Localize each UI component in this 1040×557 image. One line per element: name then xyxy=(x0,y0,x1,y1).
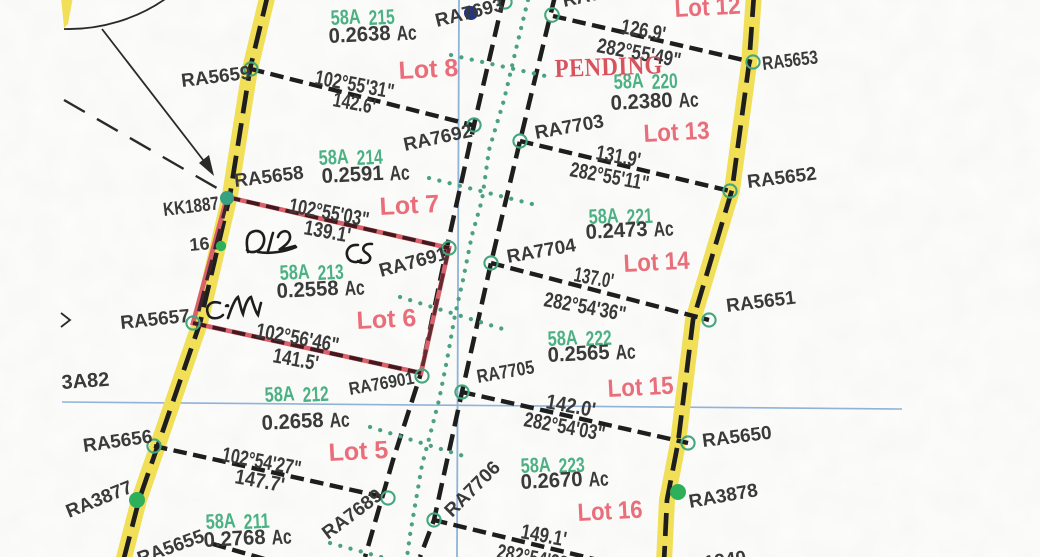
svg-text:Ac: Ac xyxy=(344,276,365,300)
svg-text:0.2658: 0.2658 xyxy=(261,409,324,435)
svg-text:0.2380: 0.2380 xyxy=(610,89,673,115)
svg-text:0.2473: 0.2473 xyxy=(585,218,648,244)
svg-text:58A: 58A xyxy=(264,382,295,407)
svg-text:16: 16 xyxy=(189,233,211,255)
svg-text:0.2638: 0.2638 xyxy=(328,22,391,48)
svg-text:Lot 16: Lot 16 xyxy=(577,496,643,527)
svg-text:0.2565: 0.2565 xyxy=(547,341,610,367)
svg-text:PENDING: PENDING xyxy=(554,50,663,83)
svg-text:Ac: Ac xyxy=(588,467,609,491)
svg-text:Ac: Ac xyxy=(615,340,636,364)
svg-text:Ac: Ac xyxy=(653,217,674,241)
svg-text:0.2670: 0.2670 xyxy=(520,468,583,494)
svg-text:Lot 8: Lot 8 xyxy=(398,54,459,85)
svg-text:0.2768: 0.2768 xyxy=(203,526,266,552)
svg-text:Ac: Ac xyxy=(329,408,350,432)
svg-text:Ac: Ac xyxy=(396,21,417,45)
svg-text:Lot 14: Lot 14 xyxy=(623,247,690,278)
svg-text:0.2591: 0.2591 xyxy=(321,162,384,188)
svg-text:212: 212 xyxy=(302,383,329,407)
svg-text:Lot 15: Lot 15 xyxy=(607,372,674,403)
svg-text:Lot 13: Lot 13 xyxy=(643,117,710,148)
svg-text:Lot 6: Lot 6 xyxy=(356,304,417,335)
svg-text:Lot 5: Lot 5 xyxy=(328,436,389,467)
svg-text:Ac: Ac xyxy=(389,161,410,185)
svg-text:Ac: Ac xyxy=(271,525,292,549)
svg-text:Lot 12: Lot 12 xyxy=(674,0,741,23)
svg-text:Ac: Ac xyxy=(678,88,699,112)
svg-text:0.2558: 0.2558 xyxy=(276,277,339,303)
svg-text:3A82: 3A82 xyxy=(61,369,110,394)
svg-text:Lot 7: Lot 7 xyxy=(379,190,440,221)
